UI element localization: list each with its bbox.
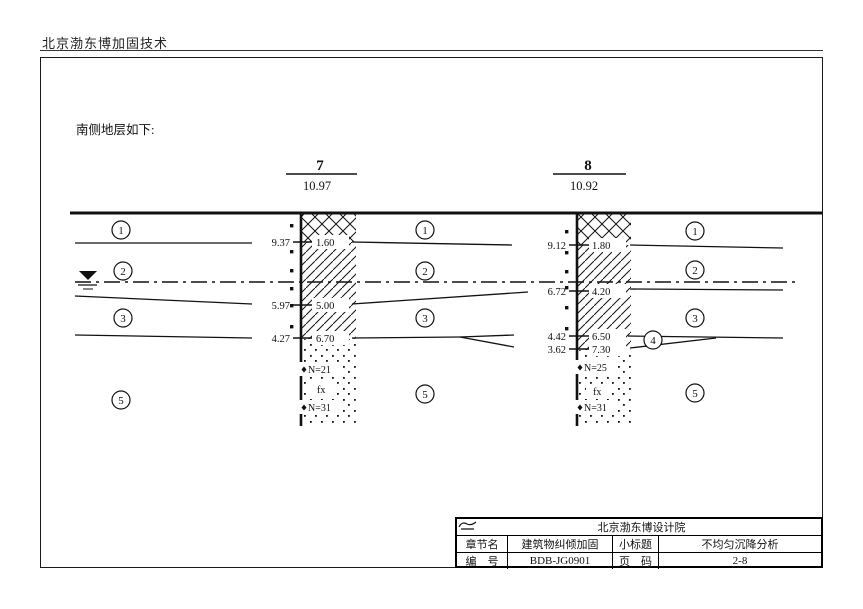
svg-text:3: 3 (422, 313, 428, 325)
svg-text:2: 2 (120, 266, 126, 278)
svg-text:4: 4 (650, 335, 656, 347)
borehole-7-header: 7 10.97 (286, 158, 357, 193)
bh7-spt-2: N=31 (308, 403, 331, 414)
chapter-value: 建筑物纠倾加固 (507, 536, 612, 552)
bh8-elev-4: 3.62 (548, 345, 566, 356)
layer-lines-middle (352, 242, 528, 347)
svg-text:5: 5 (692, 388, 698, 400)
bh7-elev-2: 5.97 (272, 301, 290, 312)
svg-text:2: 2 (422, 266, 428, 278)
borehole-8-column: 9.12 6.72 4.42 3.62 1.80 4.20 6.50 7.30 … (548, 213, 631, 426)
svg-text:1: 1 (692, 226, 698, 238)
bh8-id: 8 (584, 158, 592, 174)
bh8-spt-2: N=31 (584, 403, 607, 414)
bh8-elev-1: 9.12 (548, 241, 566, 252)
borehole-8-header: 8 10.92 (553, 158, 626, 193)
page-value: 2-8 (658, 553, 821, 569)
bh7-clay-hatch (301, 242, 356, 339)
bh7-id: 7 (316, 158, 324, 174)
number-value: BDB-JG0901 (507, 553, 612, 569)
svg-text:5: 5 (118, 395, 124, 407)
bh7-top-elevation: 10.97 (303, 179, 331, 193)
subtitle-label: 小标题 (612, 536, 658, 552)
title-block-row-1: 章节名 建筑物纠倾加固 小标题 不均匀沉降分析 (457, 535, 821, 552)
bh8-depth-3: 6.50 (592, 332, 610, 343)
bh8-elev-3: 4.42 (548, 332, 566, 343)
bh8-elev-2: 6.72 (548, 287, 566, 298)
bh8-depth-1: 1.80 (592, 241, 610, 252)
svg-text:1: 1 (118, 225, 124, 237)
bh8-fx: fx (593, 387, 601, 398)
document-page: 北京渤东博加固技术 南侧地层如下: (0, 0, 863, 609)
subtitle-value: 不均匀沉降分析 (658, 536, 821, 552)
bh7-elev-3: 4.27 (272, 334, 290, 345)
bh7-depth-2: 5.00 (316, 301, 334, 312)
bh7-elev-1: 9.37 (272, 238, 290, 249)
svg-text:1: 1 (422, 225, 428, 237)
svg-text:2: 2 (692, 265, 698, 277)
borehole-7-column: 9.37 5.97 4.27 1.60 5.00 6.70 N=21 fx N=… (272, 213, 356, 426)
bh7-fx: fx (317, 385, 325, 396)
bh7-depth-3: 6.70 (316, 334, 334, 345)
water-table-icon (78, 271, 97, 289)
bh7-spt-1: N=21 (308, 365, 331, 376)
svg-text:3: 3 (120, 313, 126, 325)
title-block-row-2: 编 号 BDB-JG0901 页 码 2-8 (457, 552, 821, 569)
bh8-spt-1: N=25 (584, 363, 607, 374)
title-block: 北京渤东博设计院 章节名 建筑物纠倾加固 小标题 不均匀沉降分析 编 号 BDB… (455, 517, 823, 568)
institute-name: 北京渤东博设计院 (598, 519, 686, 535)
bh8-depth-4: 7.30 (592, 345, 610, 356)
svg-text:5: 5 (422, 389, 428, 401)
title-block-institute-row: 北京渤东博设计院 (457, 519, 821, 535)
layer-lines-left (75, 243, 252, 338)
bh8-depth-2: 4.20 (592, 287, 610, 298)
svg-text:3: 3 (692, 313, 698, 325)
chapter-label: 章节名 (457, 536, 507, 552)
bh7-sample-dots (290, 224, 293, 328)
bh8-top-elevation: 10.92 (570, 179, 598, 193)
bh7-depth-1: 1.60 (316, 238, 334, 249)
number-label: 编 号 (457, 553, 507, 569)
page-label: 页 码 (612, 553, 658, 569)
